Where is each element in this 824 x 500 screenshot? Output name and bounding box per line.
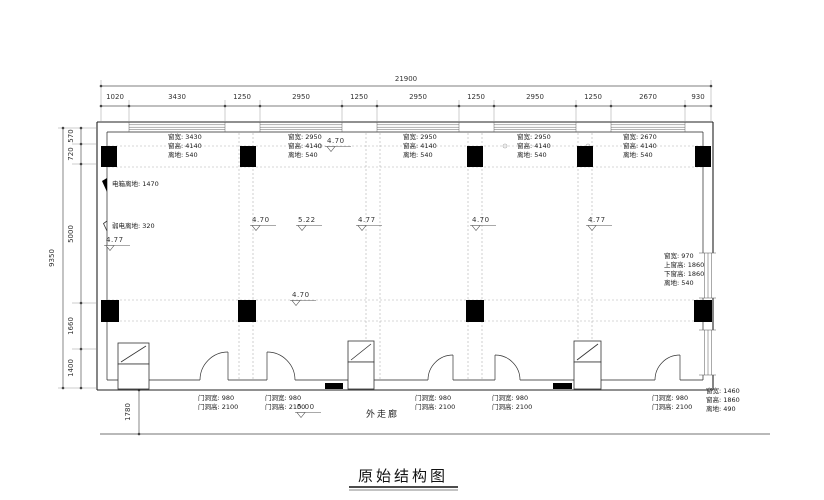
top-dim-seg-3: 1250 — [233, 93, 251, 101]
door-swing-5 — [655, 355, 680, 380]
top-window-glazing — [129, 122, 685, 132]
door-spec-block-1: 门洞宽: 980门洞高: 2100 — [198, 394, 238, 412]
door-spec-block-3: 门洞宽: 980门洞高: 2100 — [415, 394, 455, 412]
elevation-value-left: 4.77 — [106, 236, 124, 244]
left-dim-seg-4: 1660 — [67, 317, 75, 335]
top-dim-seg-7: 1250 — [467, 93, 485, 101]
corridor-dimension — [138, 389, 141, 436]
elevation-value-mid-4: 4.70 — [472, 216, 490, 224]
bottom-right-window-spec-block: 窗宽: 1460窗高: 1860离地: 490 — [706, 387, 740, 414]
top-dim-seg-6: 2950 — [409, 93, 427, 101]
outer-walls — [97, 122, 713, 390]
top-dim-total: 21900 — [395, 75, 417, 83]
elevation-value-lower: 4.70 — [292, 291, 310, 299]
shaft-symbol-2 — [348, 341, 374, 389]
shaft-symbols — [118, 341, 601, 389]
left-dim-seg-1: 570 — [67, 129, 75, 142]
top-dim-seg-2: 3430 — [168, 93, 186, 101]
left-dim-seg-3: 5000 — [67, 225, 75, 243]
top-dim-seg-10: 2670 — [639, 93, 657, 101]
elevation-value-top: 4.70 — [327, 137, 345, 145]
corridor-width-dim: 1780 — [124, 403, 132, 421]
shaft-symbol-3 — [574, 341, 601, 389]
drawing-title: 原始结构图 — [358, 465, 448, 486]
top-dim-seg-4: 2950 — [292, 93, 310, 101]
right-window-spec-block: 窗宽: 970上窗高: 1860 下窗高: 1860离地: 540 — [664, 252, 704, 288]
top-dimension-ticks — [100, 85, 713, 108]
corridor-label: 外走廊 — [366, 407, 399, 420]
window-spec-block-3: 窗宽: 2950窗高: 4140离地: 540 — [403, 133, 437, 160]
top-dim-seg-11: 930 — [691, 93, 704, 101]
door-swings — [200, 352, 680, 380]
low-voltage-note: 弱电离地: 320 — [112, 220, 155, 230]
left-dim-total: 9350 — [48, 249, 56, 267]
left-dim-seg-2: 720 — [67, 147, 75, 160]
elevation-value-mid-1: 4.70 — [252, 216, 270, 224]
electrical-box-icon — [102, 178, 107, 192]
door-swing-3 — [428, 355, 453, 380]
door-swing-4 — [495, 355, 520, 380]
structural-columns — [101, 146, 712, 322]
title-underline — [349, 487, 458, 490]
low-voltage-icon — [104, 221, 108, 231]
shaft-symbol-1 — [118, 343, 149, 389]
electrical-box-note: 电箱离地: 1470 — [112, 178, 159, 188]
elevation-value-mid-3: 4.77 — [358, 216, 376, 224]
top-dim-seg-8: 2950 — [526, 93, 544, 101]
window-spec-block-2: 窗宽: 2950窗高: 4140离地: 540 — [288, 133, 322, 160]
door-spec-block-4: 门洞宽: 980门洞高: 2100 — [492, 394, 532, 412]
top-dim-seg-5: 1250 — [350, 93, 368, 101]
floor-plan-canvas: 21900 1020 3430 1250 2950 1250 2950 1250… — [0, 0, 824, 500]
beam-dashed-lines — [108, 133, 702, 379]
top-dim-seg-1: 1020 — [106, 93, 124, 101]
left-dim-seg-5: 1400 — [67, 359, 75, 377]
elevation-value-bottom: 5.00 — [297, 403, 315, 411]
elevation-value-mid-5: 4.77 — [588, 216, 606, 224]
door-spec-block-5: 门洞宽: 980门洞高: 2100 — [652, 394, 692, 412]
door-swing-2 — [267, 352, 295, 380]
left-dimension-extensions — [58, 128, 96, 388]
top-dim-seg-9: 1250 — [584, 93, 602, 101]
elevation-value-mid-2: 5.22 — [298, 216, 316, 224]
top-dimension-lines — [101, 86, 711, 106]
left-dimension-ticks — [62, 127, 83, 390]
window-spec-block-5: 窗宽: 2670窗高: 4140离地: 540 — [623, 133, 657, 160]
door-swing-1 — [200, 352, 228, 380]
inner-walls — [107, 132, 703, 380]
window-spec-block-1: 窗宽: 3430窗高: 4140离地: 540 — [168, 133, 202, 160]
window-spec-block-4: 窗宽: 2950窗高: 4140离地: 540 — [517, 133, 551, 160]
